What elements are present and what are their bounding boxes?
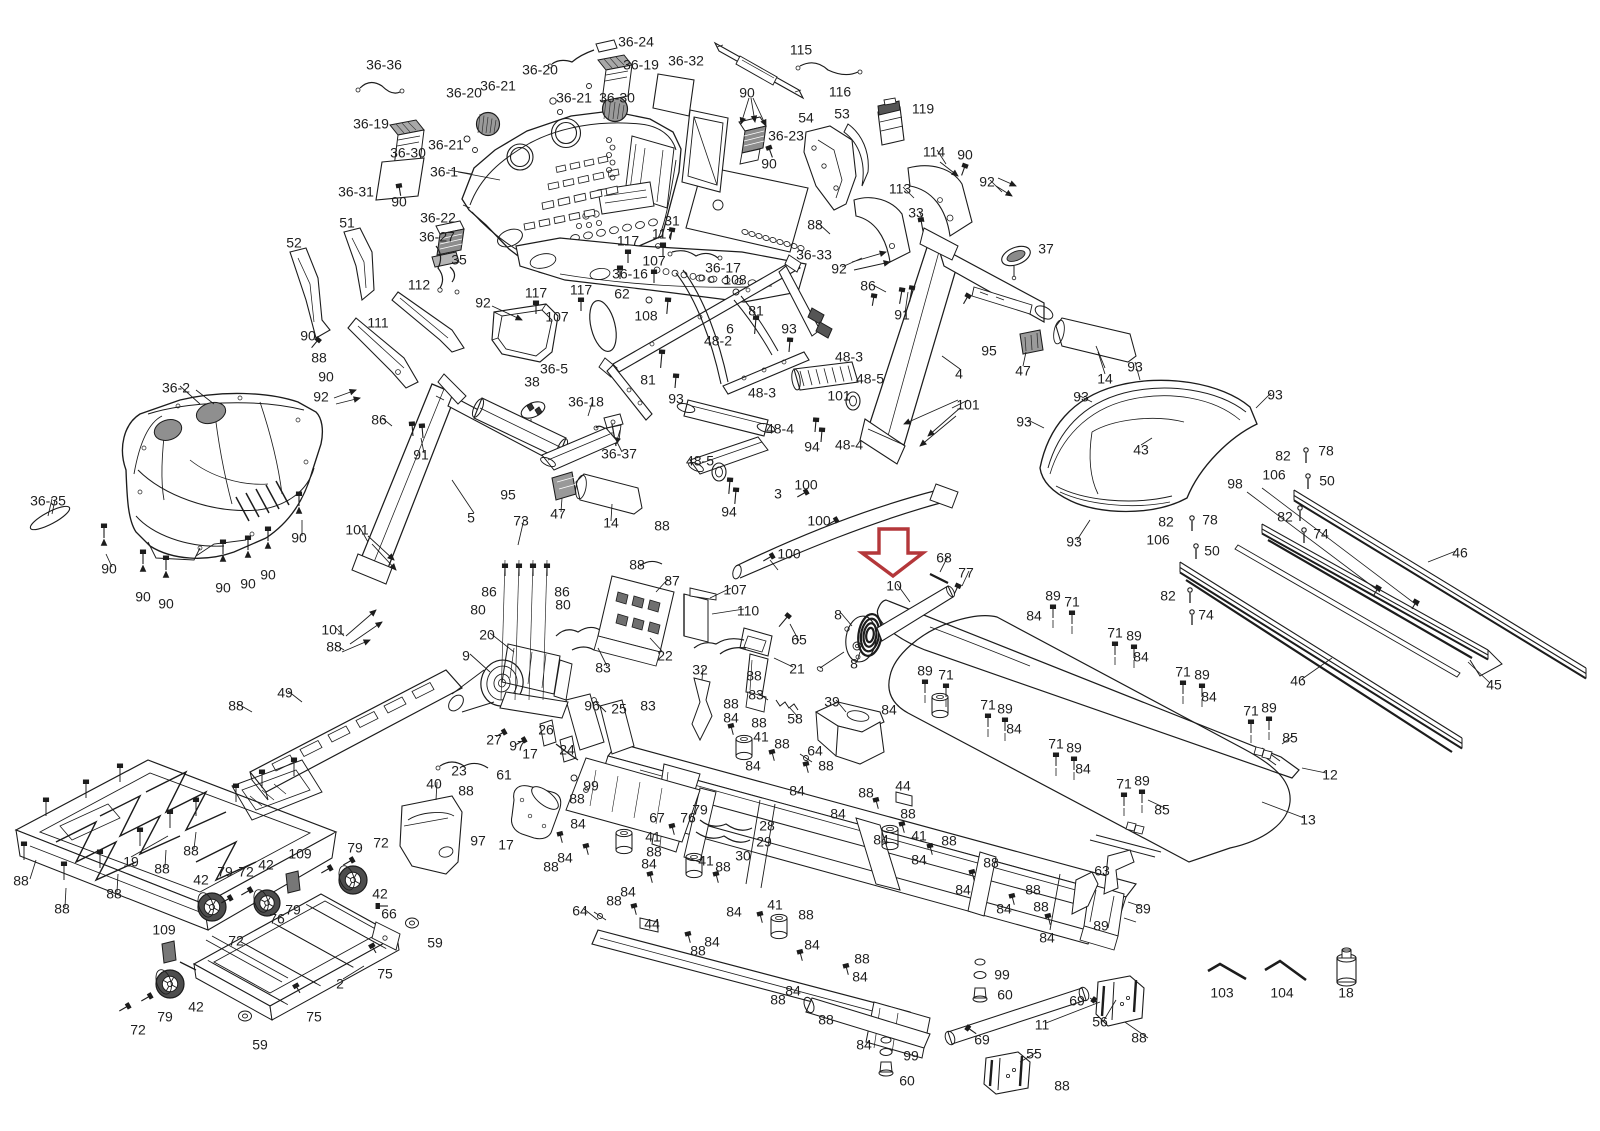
svg-text:116: 116 bbox=[829, 84, 852, 100]
svg-text:89: 89 bbox=[1261, 700, 1277, 716]
svg-text:97: 97 bbox=[470, 833, 486, 849]
svg-text:99: 99 bbox=[994, 967, 1010, 983]
svg-text:82: 82 bbox=[1160, 588, 1176, 604]
svg-text:107: 107 bbox=[723, 582, 747, 598]
svg-text:78: 78 bbox=[1202, 512, 1218, 528]
svg-text:54: 54 bbox=[798, 110, 814, 126]
svg-text:59: 59 bbox=[252, 1037, 268, 1053]
svg-text:88: 88 bbox=[690, 943, 706, 959]
svg-text:100: 100 bbox=[794, 477, 818, 493]
svg-text:88: 88 bbox=[606, 893, 622, 909]
svg-text:106: 106 bbox=[1262, 467, 1286, 483]
svg-text:36-21: 36-21 bbox=[480, 78, 516, 94]
svg-text:88: 88 bbox=[770, 992, 786, 1008]
svg-text:90: 90 bbox=[101, 561, 117, 577]
svg-text:88: 88 bbox=[54, 901, 70, 917]
svg-text:117: 117 bbox=[525, 285, 548, 301]
svg-text:88: 88 bbox=[858, 785, 874, 801]
svg-text:26: 26 bbox=[538, 722, 554, 738]
svg-text:107: 107 bbox=[545, 309, 569, 325]
svg-text:74: 74 bbox=[1313, 526, 1329, 542]
svg-text:88: 88 bbox=[154, 861, 170, 877]
svg-text:36-20: 36-20 bbox=[522, 62, 558, 78]
svg-text:88: 88 bbox=[106, 886, 122, 902]
svg-text:43: 43 bbox=[1133, 442, 1149, 458]
svg-text:9: 9 bbox=[462, 648, 470, 664]
svg-text:84: 84 bbox=[620, 884, 636, 900]
svg-text:88: 88 bbox=[458, 783, 474, 799]
svg-text:88: 88 bbox=[854, 951, 870, 967]
svg-text:30: 30 bbox=[735, 848, 751, 864]
svg-text:80: 80 bbox=[555, 597, 571, 613]
svg-text:92: 92 bbox=[979, 174, 995, 190]
svg-text:27: 27 bbox=[486, 732, 502, 748]
svg-text:14: 14 bbox=[603, 515, 619, 531]
svg-text:36-27: 36-27 bbox=[419, 229, 455, 245]
svg-text:79: 79 bbox=[157, 1009, 173, 1025]
svg-text:22: 22 bbox=[657, 648, 673, 664]
svg-text:90: 90 bbox=[739, 85, 755, 101]
svg-text:71: 71 bbox=[1048, 736, 1064, 752]
svg-text:89: 89 bbox=[1126, 628, 1142, 644]
svg-text:12: 12 bbox=[1322, 767, 1338, 783]
svg-text:82: 82 bbox=[1277, 509, 1293, 525]
svg-text:75: 75 bbox=[306, 1009, 322, 1025]
svg-text:41: 41 bbox=[767, 897, 783, 913]
svg-text:80: 80 bbox=[470, 602, 486, 618]
svg-text:36-18: 36-18 bbox=[568, 394, 604, 410]
svg-text:84: 84 bbox=[1133, 649, 1149, 665]
svg-text:64: 64 bbox=[807, 743, 823, 759]
svg-text:36-37: 36-37 bbox=[601, 446, 637, 462]
svg-text:71: 71 bbox=[938, 667, 954, 683]
svg-text:117: 117 bbox=[570, 282, 593, 298]
svg-text:90: 90 bbox=[215, 580, 231, 596]
svg-text:38: 38 bbox=[524, 374, 540, 390]
svg-text:45: 45 bbox=[1486, 677, 1502, 693]
svg-text:84: 84 bbox=[911, 852, 927, 868]
svg-text:36-23: 36-23 bbox=[768, 128, 804, 144]
svg-text:48-5: 48-5 bbox=[856, 371, 884, 387]
svg-text:81: 81 bbox=[640, 372, 656, 388]
svg-text:88: 88 bbox=[569, 791, 585, 807]
svg-text:36-31: 36-31 bbox=[338, 184, 374, 200]
svg-text:36-35: 36-35 bbox=[30, 493, 66, 509]
svg-text:87: 87 bbox=[664, 573, 680, 589]
svg-text:84: 84 bbox=[745, 758, 761, 774]
svg-text:17: 17 bbox=[498, 837, 514, 853]
svg-text:84: 84 bbox=[873, 832, 889, 848]
svg-text:90: 90 bbox=[135, 589, 151, 605]
svg-text:84: 84 bbox=[830, 806, 846, 822]
svg-text:48-5: 48-5 bbox=[686, 453, 714, 469]
svg-text:50: 50 bbox=[1204, 543, 1220, 559]
svg-text:51: 51 bbox=[339, 215, 355, 231]
svg-text:36-16: 36-16 bbox=[612, 266, 648, 282]
svg-text:36-19: 36-19 bbox=[353, 116, 389, 132]
svg-text:81: 81 bbox=[748, 303, 764, 319]
svg-text:103: 103 bbox=[1210, 985, 1234, 1001]
svg-text:92: 92 bbox=[475, 295, 491, 311]
svg-text:60: 60 bbox=[899, 1073, 915, 1089]
svg-text:47: 47 bbox=[1015, 363, 1031, 379]
svg-text:71: 71 bbox=[1243, 703, 1259, 719]
svg-text:28: 28 bbox=[759, 818, 775, 834]
svg-text:93: 93 bbox=[1127, 359, 1143, 375]
svg-text:94: 94 bbox=[721, 504, 737, 520]
svg-text:84: 84 bbox=[804, 937, 820, 953]
svg-text:84: 84 bbox=[1039, 930, 1055, 946]
svg-text:100: 100 bbox=[807, 513, 831, 529]
svg-text:36-24: 36-24 bbox=[618, 34, 654, 50]
svg-text:93: 93 bbox=[1267, 387, 1283, 403]
svg-text:78: 78 bbox=[1318, 443, 1334, 459]
svg-text:71: 71 bbox=[1064, 594, 1080, 610]
svg-text:40: 40 bbox=[426, 776, 442, 792]
svg-text:36-36: 36-36 bbox=[366, 57, 402, 73]
svg-text:86: 86 bbox=[371, 412, 387, 428]
svg-text:84: 84 bbox=[785, 983, 801, 999]
svg-text:89: 89 bbox=[1045, 588, 1061, 604]
svg-text:39: 39 bbox=[824, 694, 840, 710]
svg-text:101: 101 bbox=[321, 622, 345, 638]
svg-text:100: 100 bbox=[777, 546, 801, 562]
svg-text:84: 84 bbox=[955, 882, 971, 898]
svg-text:88: 88 bbox=[1025, 882, 1041, 898]
svg-text:71: 71 bbox=[1107, 625, 1123, 641]
svg-text:88: 88 bbox=[13, 873, 29, 889]
svg-text:72: 72 bbox=[130, 1022, 146, 1038]
svg-text:85: 85 bbox=[1154, 802, 1170, 818]
svg-text:109: 109 bbox=[288, 846, 312, 862]
svg-text:36-2: 36-2 bbox=[162, 380, 190, 396]
svg-text:90: 90 bbox=[260, 567, 276, 583]
svg-text:84: 84 bbox=[570, 816, 586, 832]
svg-text:35: 35 bbox=[451, 252, 467, 268]
svg-text:29: 29 bbox=[756, 834, 772, 850]
svg-text:90: 90 bbox=[391, 194, 407, 210]
svg-text:11: 11 bbox=[1035, 1017, 1050, 1033]
svg-text:98: 98 bbox=[1227, 476, 1243, 492]
svg-text:48-4: 48-4 bbox=[835, 437, 863, 453]
svg-text:56: 56 bbox=[1092, 1014, 1108, 1030]
svg-text:84: 84 bbox=[557, 850, 573, 866]
svg-text:83: 83 bbox=[640, 698, 656, 714]
svg-text:8: 8 bbox=[834, 607, 842, 623]
svg-text:89: 89 bbox=[1135, 901, 1151, 917]
svg-text:62: 62 bbox=[614, 286, 630, 302]
svg-text:88: 88 bbox=[900, 806, 916, 822]
svg-text:18: 18 bbox=[1338, 985, 1354, 1001]
svg-text:91: 91 bbox=[894, 307, 910, 323]
svg-text:58: 58 bbox=[787, 711, 803, 727]
svg-text:84: 84 bbox=[996, 901, 1012, 917]
svg-text:36-20: 36-20 bbox=[446, 85, 482, 101]
svg-text:25: 25 bbox=[611, 701, 627, 717]
svg-text:88: 88 bbox=[818, 758, 834, 774]
svg-text:8: 8 bbox=[850, 656, 858, 672]
svg-text:114: 114 bbox=[923, 144, 946, 160]
svg-text:42: 42 bbox=[188, 999, 204, 1015]
svg-text:109: 109 bbox=[152, 922, 176, 938]
svg-text:94: 94 bbox=[804, 439, 820, 455]
svg-text:36-21: 36-21 bbox=[428, 137, 464, 153]
svg-text:48-3: 48-3 bbox=[748, 385, 776, 401]
svg-text:112: 112 bbox=[408, 277, 431, 293]
svg-text:75: 75 bbox=[377, 966, 393, 982]
svg-text:93: 93 bbox=[668, 391, 684, 407]
svg-text:61: 61 bbox=[496, 767, 512, 783]
svg-text:36-32: 36-32 bbox=[668, 53, 704, 69]
svg-text:36-21: 36-21 bbox=[556, 90, 592, 106]
svg-text:86: 86 bbox=[860, 278, 876, 294]
svg-text:88: 88 bbox=[983, 855, 999, 871]
svg-text:108: 108 bbox=[634, 308, 658, 324]
svg-text:84: 84 bbox=[1026, 608, 1042, 624]
svg-text:108: 108 bbox=[723, 272, 747, 288]
svg-text:86: 86 bbox=[481, 584, 497, 600]
svg-text:37: 37 bbox=[1038, 241, 1054, 257]
svg-text:111: 111 bbox=[367, 315, 388, 331]
svg-text:88: 88 bbox=[228, 698, 244, 714]
svg-text:2: 2 bbox=[336, 976, 344, 992]
svg-text:88: 88 bbox=[183, 843, 199, 859]
svg-text:42: 42 bbox=[258, 857, 274, 873]
svg-text:89: 89 bbox=[917, 663, 933, 679]
svg-text:119: 119 bbox=[912, 101, 935, 117]
svg-text:93: 93 bbox=[1066, 534, 1082, 550]
svg-text:21: 21 bbox=[789, 661, 805, 677]
svg-text:88: 88 bbox=[807, 217, 823, 233]
svg-text:84: 84 bbox=[704, 934, 720, 950]
svg-text:83: 83 bbox=[595, 660, 611, 676]
svg-text:84: 84 bbox=[726, 904, 742, 920]
svg-text:89: 89 bbox=[1066, 740, 1082, 756]
svg-text:67: 67 bbox=[649, 810, 665, 826]
svg-text:59: 59 bbox=[427, 935, 443, 951]
svg-text:14: 14 bbox=[1097, 371, 1113, 387]
svg-text:84: 84 bbox=[881, 702, 897, 718]
svg-text:72: 72 bbox=[228, 933, 244, 949]
svg-text:93: 93 bbox=[1016, 414, 1032, 430]
svg-text:17: 17 bbox=[522, 746, 538, 762]
svg-text:55: 55 bbox=[1026, 1046, 1042, 1062]
svg-text:44: 44 bbox=[644, 916, 660, 932]
svg-text:19: 19 bbox=[123, 854, 139, 870]
svg-text:72: 72 bbox=[373, 835, 389, 851]
svg-text:41: 41 bbox=[698, 853, 714, 869]
svg-text:115: 115 bbox=[790, 42, 813, 58]
svg-text:88: 88 bbox=[311, 350, 327, 366]
svg-text:101: 101 bbox=[827, 388, 851, 404]
svg-text:79: 79 bbox=[217, 864, 233, 880]
svg-text:99: 99 bbox=[583, 778, 599, 794]
svg-text:36-33: 36-33 bbox=[796, 247, 832, 263]
svg-text:73: 73 bbox=[513, 513, 529, 529]
svg-text:110: 110 bbox=[737, 603, 760, 619]
svg-text:88: 88 bbox=[543, 859, 559, 875]
svg-text:63: 63 bbox=[1094, 863, 1110, 879]
svg-text:88: 88 bbox=[774, 736, 790, 752]
svg-text:79: 79 bbox=[285, 902, 301, 918]
svg-text:71: 71 bbox=[980, 697, 996, 713]
svg-text:113: 113 bbox=[889, 181, 912, 197]
svg-text:84: 84 bbox=[641, 856, 657, 872]
svg-text:36-5: 36-5 bbox=[540, 361, 568, 377]
svg-text:4: 4 bbox=[955, 366, 963, 382]
svg-text:89: 89 bbox=[997, 701, 1013, 717]
svg-text:53: 53 bbox=[834, 106, 850, 122]
svg-text:69: 69 bbox=[1069, 993, 1085, 1009]
svg-text:47: 47 bbox=[550, 506, 566, 522]
svg-text:32: 32 bbox=[692, 662, 708, 678]
svg-text:93: 93 bbox=[781, 321, 797, 337]
svg-text:88: 88 bbox=[941, 833, 957, 849]
svg-text:88: 88 bbox=[1033, 899, 1049, 915]
svg-text:84: 84 bbox=[856, 1037, 872, 1053]
svg-text:71: 71 bbox=[1175, 664, 1191, 680]
svg-text:3: 3 bbox=[774, 486, 782, 502]
svg-text:91: 91 bbox=[413, 447, 429, 463]
svg-text:36-30: 36-30 bbox=[599, 90, 635, 106]
svg-text:95: 95 bbox=[981, 343, 997, 359]
svg-text:99: 99 bbox=[903, 1048, 919, 1064]
svg-text:117: 117 bbox=[617, 233, 640, 249]
svg-text:76: 76 bbox=[269, 911, 285, 927]
svg-text:46: 46 bbox=[1452, 545, 1468, 561]
svg-text:60: 60 bbox=[997, 987, 1013, 1003]
svg-text:82: 82 bbox=[1275, 448, 1291, 464]
svg-text:36-19: 36-19 bbox=[623, 57, 659, 73]
svg-text:90: 90 bbox=[291, 530, 307, 546]
svg-text:71: 71 bbox=[1116, 776, 1132, 792]
svg-text:83: 83 bbox=[748, 687, 764, 703]
svg-text:89: 89 bbox=[1134, 773, 1150, 789]
svg-text:50: 50 bbox=[1319, 473, 1335, 489]
svg-text:88: 88 bbox=[654, 518, 670, 534]
svg-text:84: 84 bbox=[852, 969, 868, 985]
svg-text:36-1: 36-1 bbox=[430, 164, 458, 180]
svg-text:92: 92 bbox=[313, 389, 329, 405]
svg-text:90: 90 bbox=[300, 328, 316, 344]
svg-text:33: 33 bbox=[908, 205, 924, 221]
svg-text:41: 41 bbox=[753, 729, 769, 745]
svg-text:90: 90 bbox=[761, 156, 777, 172]
svg-text:36-30: 36-30 bbox=[390, 145, 426, 161]
svg-text:101: 101 bbox=[345, 522, 369, 538]
svg-text:84: 84 bbox=[1006, 721, 1022, 737]
svg-text:52: 52 bbox=[286, 235, 302, 251]
svg-text:84: 84 bbox=[1201, 689, 1217, 705]
svg-text:88: 88 bbox=[746, 668, 762, 684]
svg-text:48-3: 48-3 bbox=[835, 349, 863, 365]
svg-text:89: 89 bbox=[1093, 918, 1109, 934]
svg-text:88: 88 bbox=[1131, 1030, 1147, 1046]
svg-text:65: 65 bbox=[791, 632, 807, 648]
svg-text:42: 42 bbox=[193, 872, 209, 888]
svg-text:72: 72 bbox=[238, 864, 254, 880]
svg-text:36-22: 36-22 bbox=[420, 210, 456, 226]
svg-text:84: 84 bbox=[723, 710, 739, 726]
svg-text:90: 90 bbox=[318, 369, 334, 385]
svg-text:88: 88 bbox=[1054, 1078, 1070, 1094]
svg-text:88: 88 bbox=[715, 859, 731, 875]
svg-text:48-4: 48-4 bbox=[766, 421, 794, 437]
svg-text:77: 77 bbox=[958, 565, 974, 581]
svg-text:23: 23 bbox=[451, 763, 467, 779]
svg-text:84: 84 bbox=[1075, 761, 1091, 777]
svg-text:92: 92 bbox=[831, 261, 847, 277]
svg-text:84: 84 bbox=[789, 783, 805, 799]
svg-text:89: 89 bbox=[1194, 667, 1210, 683]
svg-text:69: 69 bbox=[974, 1032, 990, 1048]
svg-text:44: 44 bbox=[895, 778, 911, 794]
svg-text:88: 88 bbox=[818, 1012, 834, 1028]
svg-text:68: 68 bbox=[936, 550, 952, 566]
svg-text:101: 101 bbox=[956, 397, 980, 413]
svg-text:88: 88 bbox=[798, 907, 814, 923]
svg-text:90: 90 bbox=[957, 147, 973, 163]
svg-text:5: 5 bbox=[467, 510, 475, 526]
svg-text:64: 64 bbox=[572, 903, 588, 919]
svg-text:88: 88 bbox=[629, 557, 645, 573]
svg-text:46: 46 bbox=[1290, 673, 1306, 689]
svg-text:95: 95 bbox=[500, 487, 516, 503]
svg-text:79: 79 bbox=[347, 840, 363, 856]
svg-text:49: 49 bbox=[277, 685, 293, 701]
svg-text:13: 13 bbox=[1300, 812, 1316, 828]
svg-text:117: 117 bbox=[652, 226, 675, 242]
svg-text:79: 79 bbox=[692, 802, 708, 818]
svg-text:48-2: 48-2 bbox=[704, 333, 732, 349]
svg-text:82: 82 bbox=[1158, 514, 1174, 530]
svg-text:96: 96 bbox=[584, 698, 600, 714]
svg-text:66: 66 bbox=[381, 906, 397, 922]
svg-text:104: 104 bbox=[1270, 985, 1294, 1001]
svg-text:88: 88 bbox=[326, 639, 342, 655]
svg-text:20: 20 bbox=[479, 627, 495, 643]
svg-text:42: 42 bbox=[372, 886, 388, 902]
svg-text:106: 106 bbox=[1146, 532, 1170, 548]
svg-text:90: 90 bbox=[240, 576, 256, 592]
svg-text:85: 85 bbox=[1282, 730, 1298, 746]
svg-text:41: 41 bbox=[911, 828, 927, 844]
svg-text:93: 93 bbox=[1073, 389, 1089, 405]
svg-text:24: 24 bbox=[559, 742, 575, 758]
svg-text:90: 90 bbox=[158, 596, 174, 612]
svg-text:10: 10 bbox=[886, 578, 902, 594]
svg-text:41: 41 bbox=[645, 829, 661, 845]
svg-text:74: 74 bbox=[1198, 607, 1214, 623]
